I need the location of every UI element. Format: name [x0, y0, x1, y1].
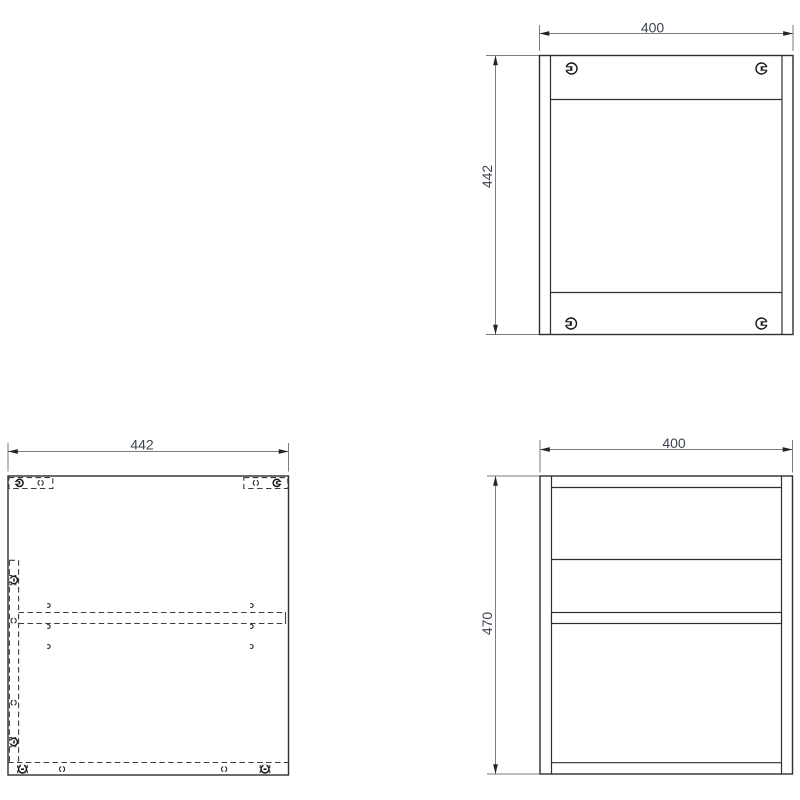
svg-text:470: 470 — [479, 612, 495, 636]
svg-text:442: 442 — [130, 437, 154, 453]
svg-text:400: 400 — [641, 20, 665, 36]
svg-text:400: 400 — [662, 435, 686, 451]
svg-text:442: 442 — [479, 165, 495, 189]
